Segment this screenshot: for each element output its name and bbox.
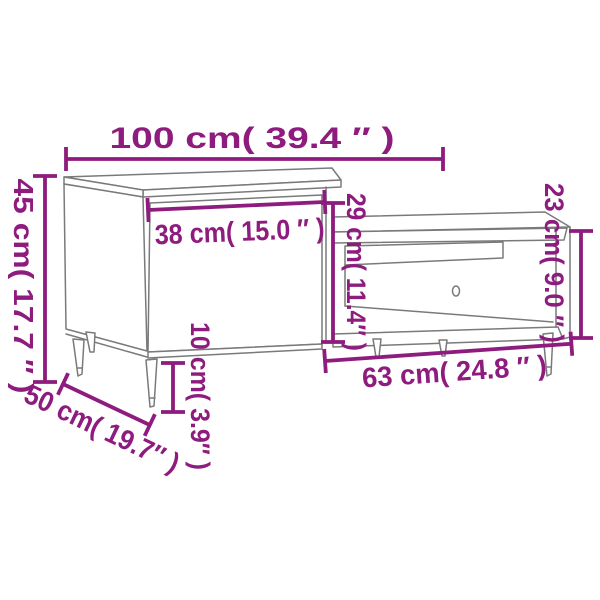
label-middle-height: 29 cm( 11.4″ ) bbox=[341, 193, 371, 351]
table-back-leg-left bbox=[373, 339, 381, 357]
cabinet-front-right-leg bbox=[146, 359, 157, 407]
dim-line-right-height bbox=[569, 231, 593, 338]
dimension-diagram-svg: 100 cm( 39.4 ″ ) 45 cm( 17.7 ″ ) 38 cm( … bbox=[0, 0, 600, 600]
product-dimension-image: 100 cm( 39.4 ″ ) 45 cm( 17.7 ″ ) 38 cm( … bbox=[0, 0, 600, 600]
label-leg-height: 10 cm( 3.9″ ) bbox=[185, 322, 215, 470]
cabinet-left-side-panel bbox=[64, 184, 147, 351]
label-total-width: 100 cm( 39.4 ″ ) bbox=[110, 122, 395, 155]
cable-hole bbox=[453, 286, 460, 296]
cabinet-back-left-leg bbox=[86, 332, 95, 352]
cabinet-front-left-leg bbox=[73, 339, 84, 376]
label-left-height: 45 cm( 17.7 ″ ) bbox=[8, 179, 39, 394]
table-shelf-back-edge bbox=[345, 306, 553, 322]
dim-line-leg-height bbox=[161, 363, 185, 412]
label-right-height: 23 cm( 9.0 ″ ) bbox=[539, 183, 569, 343]
label-depth: 50 cm( 19.7″ ) bbox=[20, 378, 185, 478]
